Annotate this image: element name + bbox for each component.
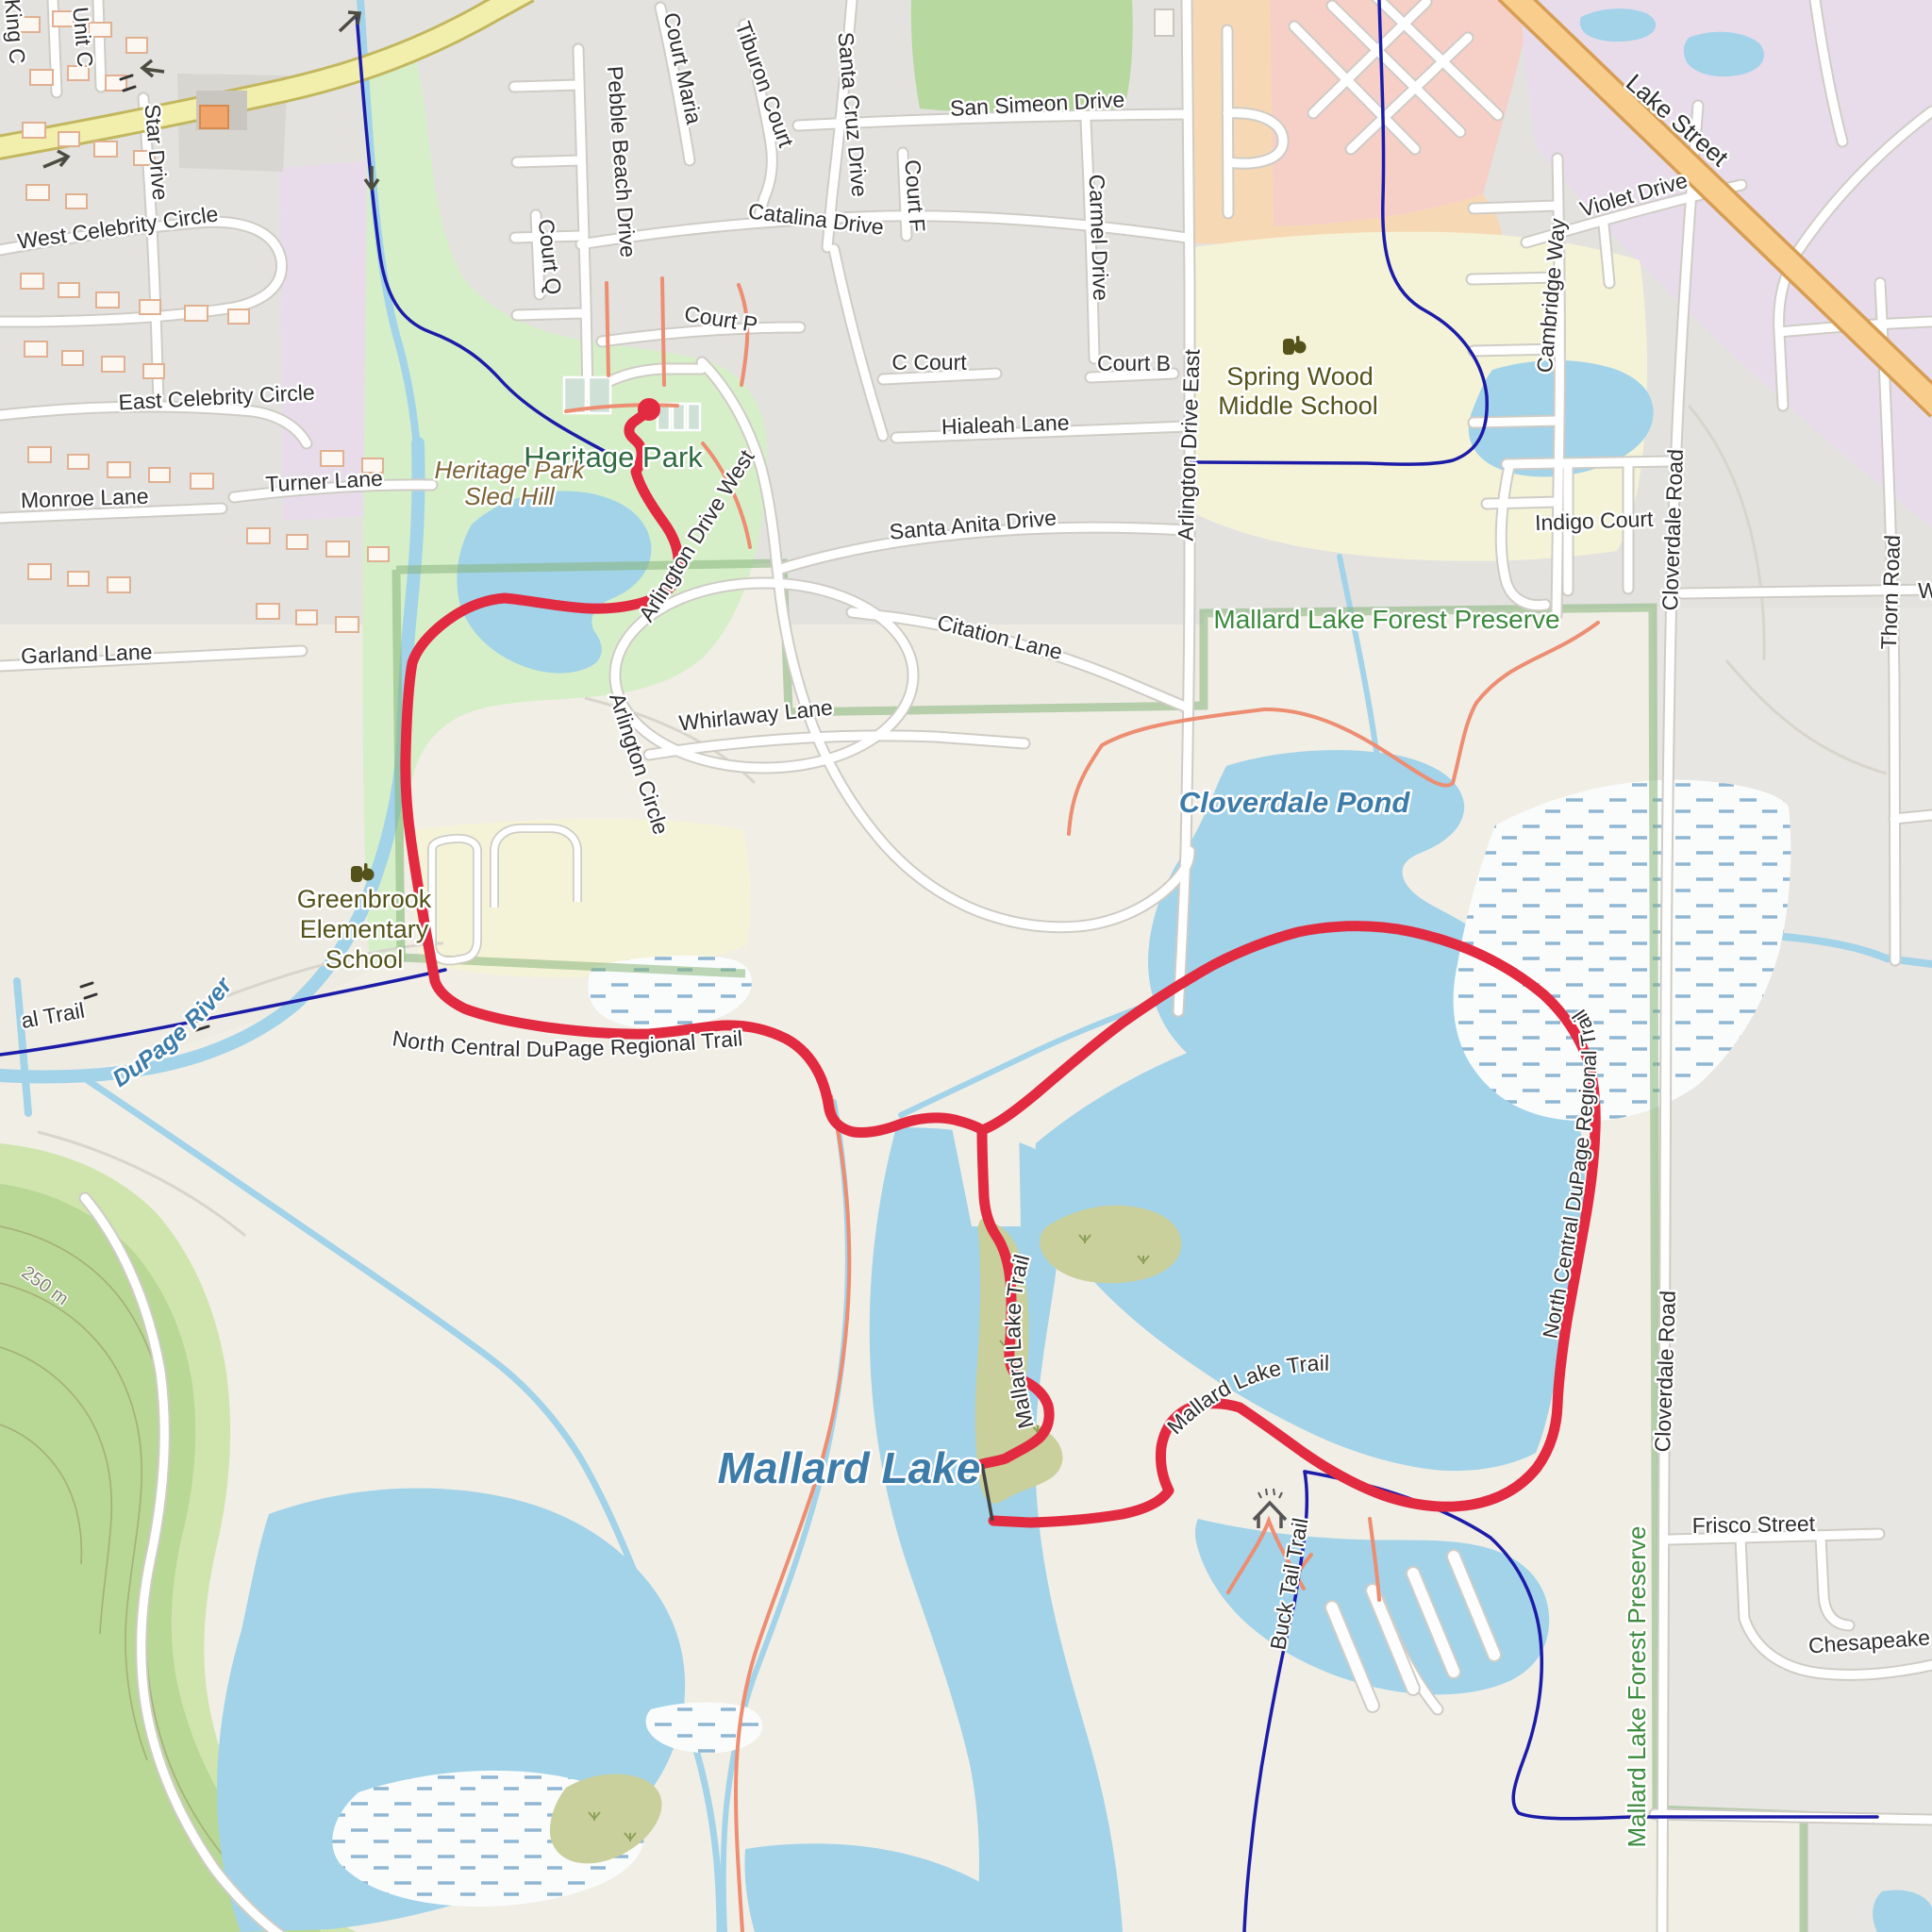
street-label: Thorn Road [1876, 535, 1905, 650]
street-label: Frisco Street [1691, 1511, 1815, 1538]
map-canvas[interactable]: King C Unit C Star Drive West Celebrity … [0, 0, 1932, 1932]
street-label: Garland Lane [21, 640, 153, 669]
school-label: Elementary [300, 915, 429, 943]
water-label: Mallard Lake [718, 1443, 981, 1492]
street-label: Unit C [68, 6, 97, 68]
sled-hill-label: Heritage Park [435, 456, 587, 484]
street-label: Carmel Drive [1085, 174, 1114, 301]
street-label: Indigo Court [1535, 507, 1655, 535]
school-label: School [325, 945, 404, 974]
water-label: Cloverdale Pond [1179, 786, 1411, 819]
street-label: Hialeah Lane [941, 410, 1070, 440]
street-label-clipped: W [1918, 578, 1932, 603]
school-label: Spring Wood [1226, 362, 1374, 391]
school-label: Middle School [1218, 391, 1378, 420]
street-label: C Court [891, 350, 967, 375]
commercial-buildings [196, 91, 247, 130]
route-start-marker [638, 398, 660, 421]
sled-hill-label: Sled Hill [464, 482, 556, 510]
map-svg[interactable]: King C Unit C Star Drive West Celebrity … [0, 0, 1932, 1932]
preserve-label: Mallard Lake Forest Preserve [1213, 605, 1559, 634]
street-label: Court B [1097, 351, 1171, 375]
street-label: Court F [900, 158, 929, 232]
orange-building [200, 106, 228, 128]
preserve-label: Mallard Lake Forest Preserve [1623, 1525, 1651, 1847]
school-label: Greenbrook [297, 885, 432, 913]
street-label: Monroe Lane [21, 484, 149, 513]
